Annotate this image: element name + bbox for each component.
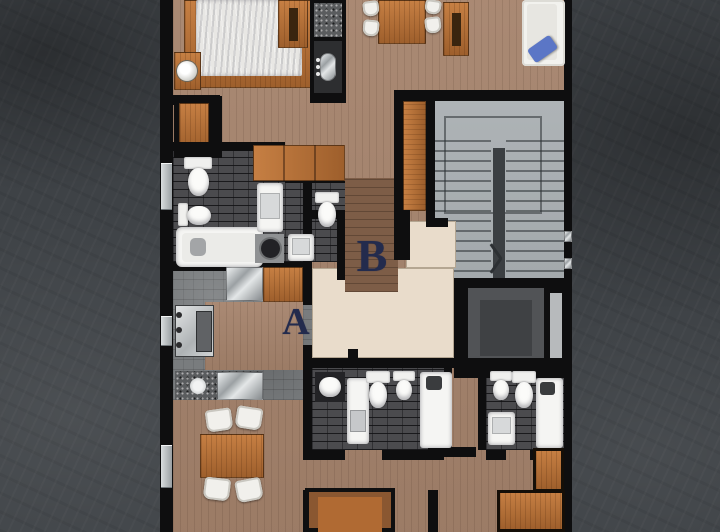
shower-head [426,376,442,390]
background-concrete: A B [0,0,720,532]
shower-head [540,382,555,395]
wall [486,450,506,460]
sink-basin [292,238,310,255]
stove-knob [176,327,182,333]
window [161,163,172,210]
faucet-knob [316,65,320,69]
vanity-basin [350,410,366,432]
chair [234,405,263,431]
bidet-bowl [493,380,509,400]
chair [205,407,234,432]
unit-a-label: A [282,303,309,341]
sink-basin [320,53,336,81]
stove-knob [176,342,182,348]
sink-basin [190,378,206,394]
toilet-bowl [318,202,336,227]
wall [394,90,403,212]
window [161,316,172,346]
unit-b-label: B [357,233,388,279]
round-basin [261,239,280,258]
kitchen-cabinet [263,267,303,302]
wall [394,210,410,260]
wall [478,368,486,450]
wall [337,210,345,280]
landing-hall [406,221,456,268]
bidet-bowl [187,206,211,225]
door-hardware [564,231,572,242]
dining-table [200,434,264,478]
vanity-basin [260,193,280,219]
wall [348,349,358,358]
wall [426,218,448,227]
bathtub-faucet [190,238,206,256]
elevator-cab-inner [480,300,532,356]
elevator-door-slot [550,293,562,363]
window [161,445,172,488]
toilet-bowl [188,168,209,196]
wall [426,101,435,221]
lamp [177,61,197,81]
closet [403,101,426,211]
dining-table [378,0,426,44]
toilet-bowl [369,382,387,408]
toilet-bowl [515,382,533,408]
stove-plate [196,311,212,352]
vanity-basin [492,417,511,434]
faucet-knob [316,72,320,76]
armchair-seat [452,13,461,46]
stair-treads-right [506,140,564,288]
wardrobe [253,145,345,181]
wall [428,447,476,457]
wall [303,358,564,368]
faucet-knob [316,58,320,62]
armchair-seat [289,8,298,41]
wall [303,450,345,460]
counter-steel [226,267,263,301]
kitchen-island-counter [314,3,342,37]
washer [217,372,263,400]
door-hardware [564,258,572,269]
stove-knob [176,312,182,318]
wall [428,490,438,532]
floor-plan: A B [160,0,572,532]
wall [396,90,572,101]
round-sink [319,377,341,397]
wardrobe [533,448,564,492]
bed-blanket [318,497,382,532]
wardrobe [497,490,565,532]
bidet-bowl [396,380,412,400]
chair [203,476,231,501]
